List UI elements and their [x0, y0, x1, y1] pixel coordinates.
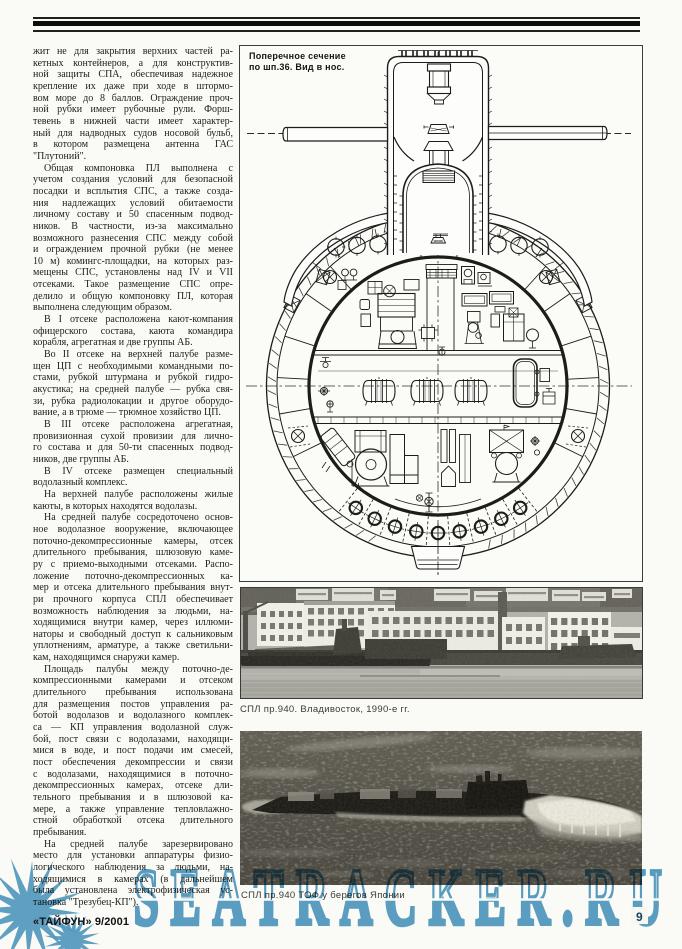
- svg-text:9: 9: [636, 910, 643, 924]
